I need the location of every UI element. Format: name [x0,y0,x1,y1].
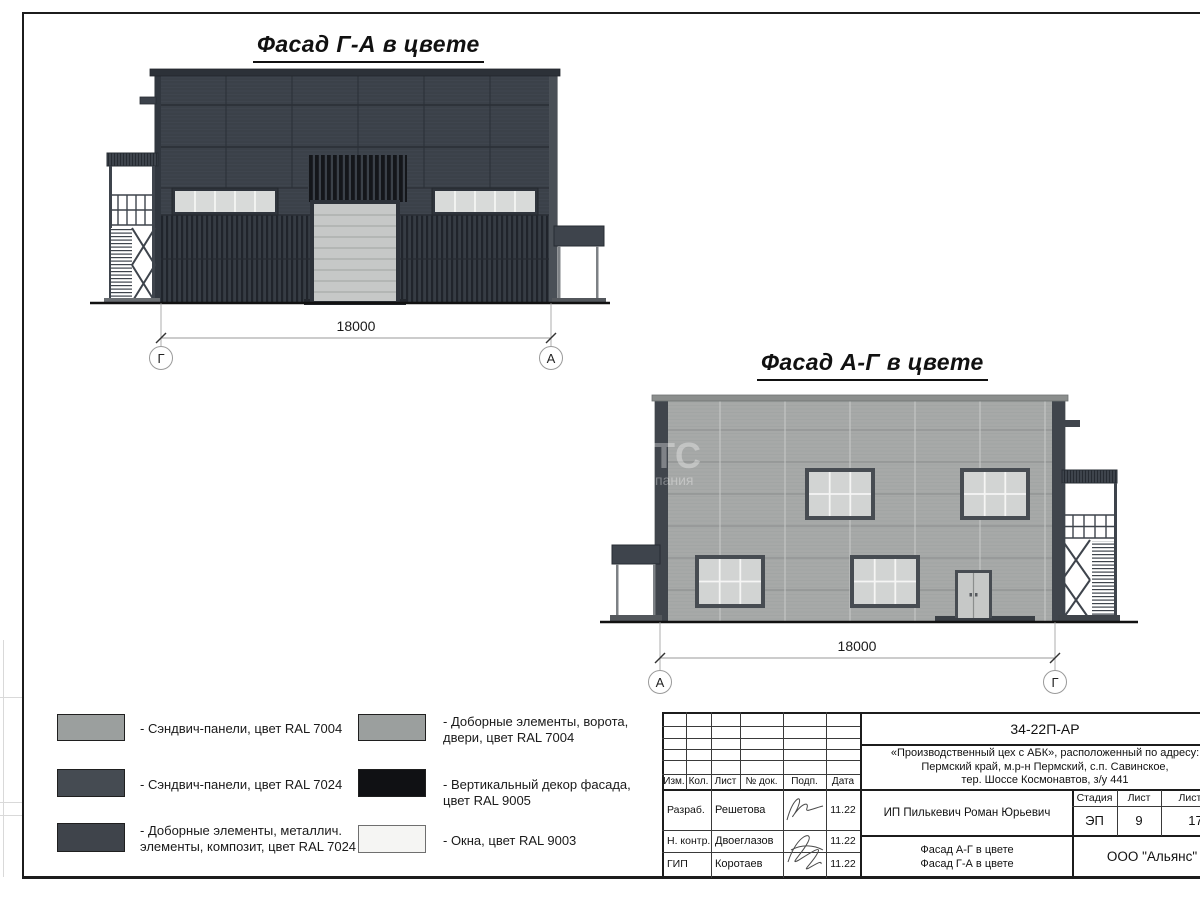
dimension-value: 18000 [838,638,877,654]
svg-text:пания: пания [655,472,694,488]
svg-text:Г: Г [157,351,164,366]
axis-marker-a: А [540,347,563,370]
sheet-border-left [22,12,24,878]
legend-swatch-ral7024-trim [57,823,125,852]
sheet-edge-artifact [3,640,4,877]
axis-marker-g: Г [150,347,173,370]
project-address: «Производственный цех с АБК», расположен… [860,746,1200,789]
col-ndok: № док. [740,774,783,789]
name-gip: Коротаев [712,852,782,876]
sheets-label: Листов [1161,790,1200,806]
axis-marker-a: А [649,671,672,694]
role-nkontr: Н. контр. [664,830,711,852]
axis-marker-g: Г [1044,671,1067,694]
sheet-edge-artifact [0,802,22,803]
legend-swatch-ral7024 [57,769,125,797]
facade-ag-title: Фасад А-Г в цвете [757,349,988,381]
facade-ga-drawing: 18000 Г А [80,60,620,375]
external-stair-left [104,153,160,303]
drawing-sheet: { "facades": [ { "title": "Фасад Г-А в ц… [0,0,1200,900]
legend-label: - Вертикальный декор фасада, цвет RAL 90… [443,777,631,808]
signature-razrab [783,792,826,876]
dimension-18000: 18000 [655,622,1060,670]
parapet-cap [150,69,560,76]
legend-swatch-ral9005 [358,769,426,797]
svg-text:Г: Г [1051,675,1058,690]
window-lower-left [695,555,765,608]
parapet-cap [652,395,1068,401]
window-lower-center [850,555,920,608]
col-podp: Подп. [783,774,826,789]
col-data: Дата [826,774,860,789]
company: ООО "Альянс" [1074,837,1200,876]
dimension-18000: 18000 [156,303,556,346]
role-razrab: Разраб. [664,790,711,830]
doc-code: 34-22П-АР [860,714,1200,744]
sheet-border-top [22,12,1200,14]
facade-ga-title: Фасад Г-А в цвете [253,31,484,63]
svg-text:А: А [547,351,556,366]
date-nkontr: 11.22 [826,830,860,852]
name-razrab: Решетова [712,790,782,830]
client: ИП Пилькевич Роман Юрьевич [862,790,1072,835]
legend-swatch-ral7004-doors [358,714,426,741]
legend-swatch-ral9003 [358,825,426,853]
legend-label: - Сэндвич-панели, цвет RAL 7004 [140,721,342,737]
svg-text:ТС: ТС [653,435,701,476]
col-list: Лист [711,774,740,789]
gate [304,200,406,305]
vertical-decor [308,155,407,202]
ribbon-window-left [172,188,278,215]
legend-label: - Окна, цвет RAL 9003 [443,833,576,849]
facade-ag-drawing: ТС пания 18000 А Г [595,385,1160,705]
porch-left [610,545,662,621]
date-razrab: 11.22 [826,790,860,830]
window-upper-left [805,468,875,520]
sheets-total: 17 [1161,806,1200,835]
sheet-number: 9 [1117,806,1161,835]
drawing-titles: Фасад А-Г в цвете Фасад Г-А в цвете [862,837,1072,876]
sheet-edge-artifact [0,697,22,698]
stage-value: ЭП [1072,806,1117,835]
ribbon-window-right [432,188,538,215]
role-gip: ГИП [664,852,711,876]
legend-label: - Доборные элементы, металлич. элементы,… [140,823,356,854]
date-gip: 11.22 [826,852,860,876]
col-kol: Кол. [686,774,711,789]
external-stair-right [1058,470,1120,622]
window-upper-right [960,468,1030,520]
sheet-edge-artifact [0,815,22,816]
legend-swatch-ral7004 [57,714,125,741]
porch-right [552,226,606,303]
col-izm: Изм. [662,774,686,789]
legend-label: - Сэндвич-панели, цвет RAL 7024 [140,777,342,793]
name-nkontr: Двоеглазов [712,830,782,852]
wall-bracket [1065,420,1080,427]
title-block: Изм. Кол. Лист № док. Подп. Дата Разраб.… [662,712,1200,878]
dimension-value: 18000 [337,318,376,334]
svg-text:А: А [656,675,665,690]
sheet-label: Лист [1117,790,1161,806]
legend-label: - Доборные элементы, ворота, двери, цвет… [443,714,628,745]
wall-bracket [140,97,156,104]
stage-label: Стадия [1072,790,1117,806]
